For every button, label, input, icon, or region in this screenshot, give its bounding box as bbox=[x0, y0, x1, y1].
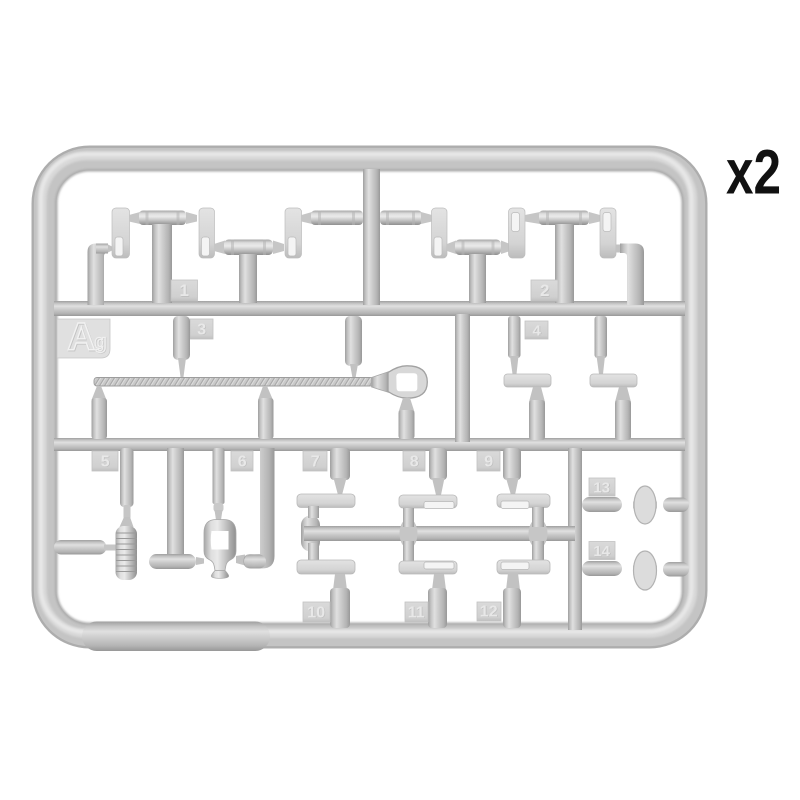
svg-text:14: 14 bbox=[593, 543, 610, 560]
svg-text:12: 12 bbox=[480, 603, 498, 620]
svg-text:5: 5 bbox=[101, 453, 110, 470]
svg-text:2: 2 bbox=[540, 281, 549, 300]
svg-text:x2: x2 bbox=[726, 138, 781, 208]
svg-text:10: 10 bbox=[307, 604, 325, 621]
svg-text:6: 6 bbox=[238, 453, 247, 470]
svg-text:g: g bbox=[94, 331, 106, 353]
svg-text:7: 7 bbox=[311, 453, 320, 470]
svg-text:8: 8 bbox=[410, 453, 419, 470]
svg-text:11: 11 bbox=[408, 604, 425, 621]
svg-text:1: 1 bbox=[179, 281, 188, 300]
svg-text:13: 13 bbox=[593, 479, 610, 496]
svg-text:4: 4 bbox=[533, 322, 542, 339]
svg-text:A: A bbox=[67, 316, 95, 359]
svg-text:9: 9 bbox=[484, 453, 493, 470]
svg-text:3: 3 bbox=[197, 321, 206, 338]
